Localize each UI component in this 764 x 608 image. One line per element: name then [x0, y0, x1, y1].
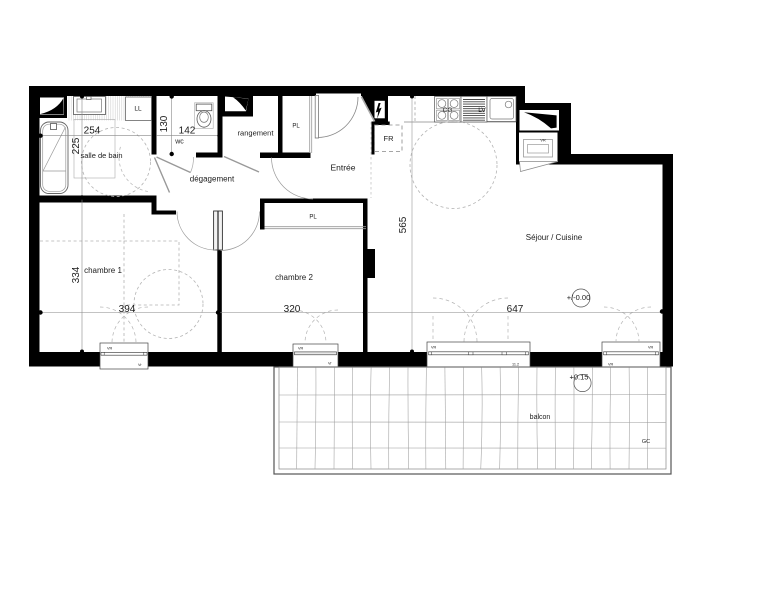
svg-text:+0.15: +0.15 — [570, 373, 589, 382]
svg-text:565: 565 — [398, 216, 409, 233]
svg-text:VR: VR — [540, 138, 546, 143]
svg-text:VR: VR — [608, 363, 614, 367]
svg-text:320: 320 — [284, 304, 301, 315]
svg-text:PL: PL — [292, 124, 300, 130]
svg-text:VR: VR — [298, 347, 304, 351]
svg-text:Séjour / Cuisine: Séjour / Cuisine — [526, 233, 583, 242]
svg-text:LV: LV — [478, 107, 486, 114]
svg-text:130: 130 — [159, 115, 170, 132]
svg-text:wc: wc — [174, 139, 184, 146]
svg-text:394: 394 — [119, 304, 136, 315]
svg-text:PL: PL — [309, 215, 317, 221]
svg-text:GC: GC — [642, 439, 650, 445]
svg-text:VR: VR — [648, 346, 654, 350]
svg-text:balcon: balcon — [530, 414, 551, 421]
svg-text:CG: CG — [443, 107, 453, 114]
svg-text:VR: VR — [107, 347, 113, 351]
svg-text:FR: FR — [384, 134, 395, 143]
svg-text:Entrée: Entrée — [330, 163, 355, 173]
svg-text:salle de bain: salle de bain — [80, 151, 122, 160]
svg-text:rangement: rangement — [238, 129, 275, 138]
svg-text:142: 142 — [179, 126, 196, 137]
svg-text:VR: VR — [431, 346, 437, 350]
svg-text:chambre 2: chambre 2 — [275, 273, 313, 282]
svg-text:254: 254 — [84, 126, 101, 137]
svg-text:11.2: 11.2 — [512, 363, 519, 367]
svg-text:647: 647 — [507, 304, 524, 315]
svg-text:chambre 1: chambre 1 — [84, 266, 122, 275]
svg-text:+/-0.00: +/-0.00 — [567, 293, 591, 302]
svg-text:334: 334 — [71, 266, 82, 283]
svg-text:LL: LL — [134, 106, 142, 113]
svg-text:dégagement: dégagement — [190, 175, 235, 184]
